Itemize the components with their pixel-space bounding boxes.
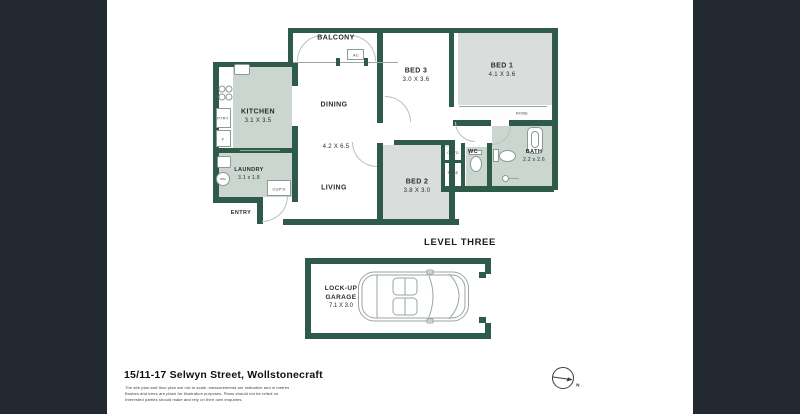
garage-door-post xyxy=(479,272,486,278)
wall xyxy=(441,186,554,192)
wall xyxy=(377,143,383,224)
laundry-dims: 3.1 x 1.8 xyxy=(238,175,260,181)
bed3-label: BED 3 xyxy=(405,68,428,75)
wall xyxy=(449,33,454,107)
entry-label: ENTRY xyxy=(231,210,251,216)
wall xyxy=(283,219,459,225)
page: AC PTRY F WM CUP'D ROBE CUP'D ROBE BALCO… xyxy=(0,0,800,414)
disclaimer-line1: The site plan and floor plan are not to … xyxy=(125,385,289,390)
wall xyxy=(336,58,340,66)
kitchen-label: KITCHEN xyxy=(241,109,275,116)
robe-strip xyxy=(458,105,552,120)
balcony-label: BALCONY xyxy=(317,35,354,42)
wall xyxy=(441,160,465,163)
bed2-label: BED 2 xyxy=(406,179,429,186)
disclaimer-line2: Bushes and trees are place for illustrat… xyxy=(125,391,280,396)
washer-label: WM xyxy=(220,177,226,181)
bed3-dims: 3.0 X 3.6 xyxy=(403,77,430,83)
fridge-label: F xyxy=(222,137,225,142)
bench-line xyxy=(240,150,280,151)
wall xyxy=(487,143,492,191)
wall xyxy=(292,126,298,202)
shower-arm xyxy=(509,178,519,179)
car-icon xyxy=(357,270,470,323)
level-label: LEVEL THREE xyxy=(395,237,525,248)
laundry-tub xyxy=(217,156,231,168)
wall xyxy=(394,140,455,145)
wall xyxy=(441,143,445,191)
kitchen-sink xyxy=(234,64,250,75)
shower-head xyxy=(502,175,509,182)
wc-label: WC xyxy=(468,149,478,155)
wall xyxy=(552,28,558,190)
disclaimer-line3: Interested parties should make and rely … xyxy=(125,397,243,402)
laundry-cupboard-label: CUP'D xyxy=(272,187,285,192)
pantry-label: PTRY xyxy=(217,116,228,121)
laundry-label: LAUNDRY xyxy=(234,167,263,173)
wall xyxy=(213,197,263,203)
wall xyxy=(213,62,298,67)
wall xyxy=(292,62,298,86)
bed1-dims: 4.1 X 3.6 xyxy=(489,72,516,78)
bathtub-inner xyxy=(531,131,539,148)
kitchen-dims: 3.1 X 3.5 xyxy=(245,118,272,124)
garage-wall xyxy=(305,258,311,339)
stove-icon xyxy=(217,84,233,104)
bed1-label: BED 1 xyxy=(491,63,514,70)
wall xyxy=(288,28,293,64)
garage-wall xyxy=(305,258,491,264)
closet-robe-label: ROBE xyxy=(448,171,459,175)
robe-strip-label: ROBE xyxy=(516,111,528,116)
kitchen-floor xyxy=(233,67,292,148)
living-label: LIVING xyxy=(321,185,347,192)
wall xyxy=(461,143,465,191)
balcony-door-track xyxy=(293,62,398,63)
wall xyxy=(377,33,383,123)
address-title: 15/11-17 Selwyn Street, Wollstonecraft xyxy=(124,369,323,381)
garage-wall xyxy=(305,333,491,339)
compass-icon xyxy=(550,365,590,393)
closet-cupboard-label: CUP'D xyxy=(447,151,459,155)
compass-north-label: N xyxy=(576,383,579,388)
garage-door-post xyxy=(479,317,486,323)
wall xyxy=(377,28,558,33)
wall xyxy=(509,120,554,126)
living-dims: 4.2 X 6.5 xyxy=(323,144,350,150)
bath-dims: 2.2 x 2.6 xyxy=(523,157,545,163)
dining-label: DINING xyxy=(321,102,348,109)
bed2-dims: 3.8 X 3.0 xyxy=(404,188,431,194)
robe-rail xyxy=(459,106,547,107)
garage-wall xyxy=(485,323,491,339)
bath-toilet xyxy=(499,150,516,162)
bath-label: BATH xyxy=(526,149,542,155)
wc-toilet xyxy=(470,156,482,172)
